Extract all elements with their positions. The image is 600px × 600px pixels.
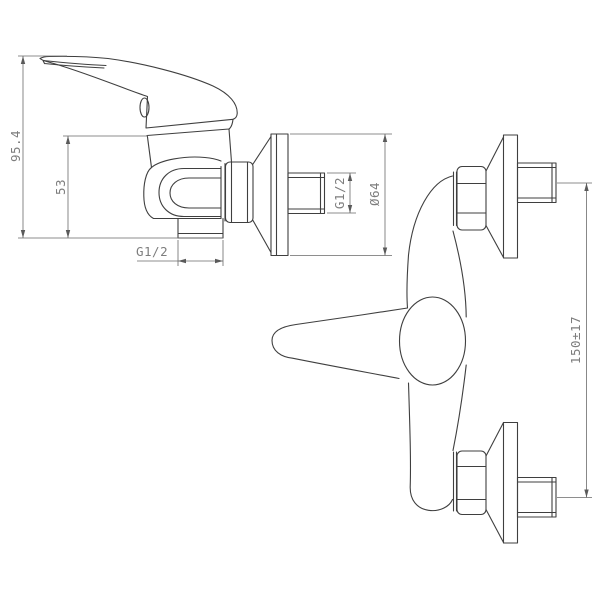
lower-escutcheon-cone bbox=[486, 423, 504, 543]
upper-hex-nut-facets bbox=[458, 184, 486, 214]
dim-connection-centers: 150±17 bbox=[568, 316, 583, 364]
arrowhead bbox=[383, 248, 387, 256]
cap-rim bbox=[147, 119, 233, 135]
front-view bbox=[272, 135, 556, 543]
hex-nut bbox=[226, 162, 254, 223]
lower-flange-plate bbox=[504, 423, 518, 544]
swivel-inner-curve bbox=[170, 178, 221, 208]
arrowhead bbox=[178, 259, 186, 263]
lower-wall-stub bbox=[518, 478, 557, 518]
upper-hex-nut bbox=[457, 167, 486, 231]
arrowhead bbox=[215, 259, 223, 263]
arrowhead bbox=[584, 183, 588, 191]
arrowhead bbox=[584, 490, 588, 498]
upper-wall-stub bbox=[518, 163, 557, 203]
washer bbox=[221, 164, 225, 222]
dim-body-height: 53 bbox=[53, 179, 68, 195]
arrowhead bbox=[66, 230, 70, 238]
wall-stub bbox=[288, 173, 325, 214]
arrowhead bbox=[348, 205, 352, 213]
arrowhead bbox=[21, 230, 25, 238]
arrowhead bbox=[348, 173, 352, 181]
lower-washer bbox=[454, 452, 457, 511]
front-body-left-and-handle bbox=[272, 176, 453, 379]
lower-hex-nut-facets bbox=[458, 467, 486, 500]
upper-washer bbox=[454, 172, 457, 226]
handle-hub bbox=[400, 297, 466, 385]
outlet-stub bbox=[178, 219, 223, 239]
front-body-lower-left bbox=[409, 383, 453, 511]
technical-drawing-page: 95.4 53 G1/2 G1/2 Ø64 150±17 bbox=[0, 0, 600, 600]
lower-wall-stub-threads bbox=[518, 478, 557, 518]
front-body-right bbox=[453, 231, 466, 451]
dim-flange-diameter: Ø64 bbox=[367, 182, 382, 206]
drawing-canvas: 95.4 53 G1/2 G1/2 Ø64 150±17 bbox=[0, 0, 600, 600]
upper-escutcheon-cone bbox=[486, 137, 504, 258]
upper-flange-plate bbox=[504, 135, 518, 258]
arrowhead bbox=[383, 134, 387, 142]
flange-plate bbox=[271, 134, 288, 256]
dimensions: 95.4 53 G1/2 G1/2 Ø64 150±17 bbox=[8, 56, 592, 498]
handle-tip-detail bbox=[43, 61, 106, 69]
body-elbow bbox=[144, 157, 221, 218]
escutcheon-cone bbox=[253, 137, 271, 253]
arrowhead bbox=[66, 136, 70, 144]
extension-lines bbox=[18, 56, 592, 498]
handle-button bbox=[140, 98, 149, 117]
wall-stub-threads bbox=[288, 173, 325, 214]
arrowhead bbox=[21, 56, 25, 64]
handle-outline bbox=[40, 56, 237, 128]
dim-wall-thread: G1/2 bbox=[332, 177, 347, 209]
hex-nut-facets bbox=[232, 163, 248, 223]
dim-outlet-thread: G1/2 bbox=[136, 244, 168, 259]
side-view bbox=[40, 56, 325, 255]
lower-hex-nut bbox=[457, 451, 486, 515]
dim-overall-height: 95.4 bbox=[8, 130, 23, 162]
upper-wall-stub-threads bbox=[518, 163, 557, 203]
swivel-outer-curve bbox=[159, 169, 221, 217]
